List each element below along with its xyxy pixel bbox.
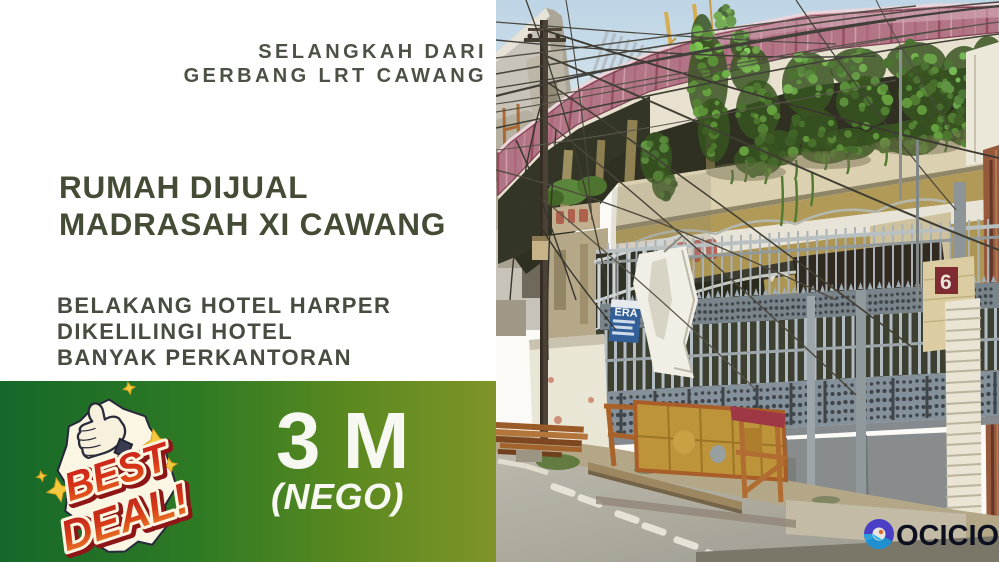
svg-text:OCICIO: OCICIO xyxy=(896,520,999,552)
